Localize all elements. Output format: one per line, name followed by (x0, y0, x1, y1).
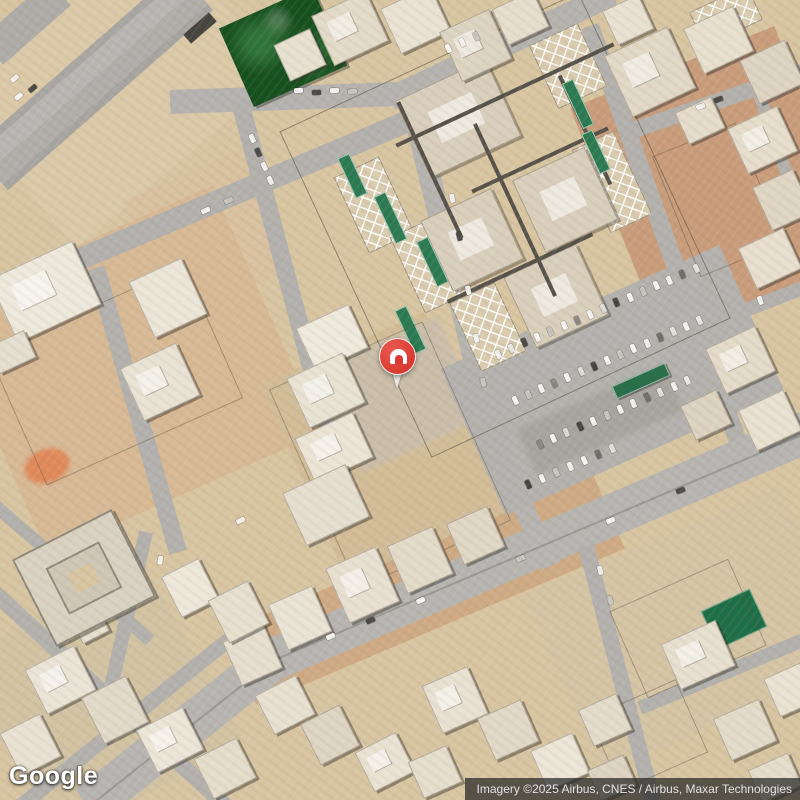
satellite-map[interactable]: Google Imagery ©2025 Airbus, CNES / Airb… (0, 0, 800, 800)
google-logo[interactable]: Google (9, 762, 98, 791)
car (347, 89, 356, 94)
rooftop-structure (310, 433, 342, 462)
car (293, 88, 302, 93)
car (329, 88, 338, 93)
home-icon (390, 349, 407, 364)
building (408, 745, 463, 799)
car (311, 90, 320, 95)
rooftop-structure (718, 345, 747, 372)
building (355, 732, 416, 792)
rooftop-structure (302, 373, 334, 403)
property-location-pin[interactable] (379, 338, 417, 394)
building (161, 558, 219, 618)
rooftop-structure (622, 52, 660, 88)
rooftop-structure (149, 726, 177, 752)
rooftop-structure (675, 640, 706, 668)
rooftop-structure (366, 749, 391, 773)
building (380, 0, 451, 54)
car (235, 516, 245, 524)
rooftop-structure (326, 12, 358, 42)
imagery-attribution: Imagery ©2025 Airbus, CNES / Airbus, Max… (465, 778, 800, 800)
car (157, 555, 163, 565)
rooftop-structure (740, 125, 769, 152)
rooftop-structure (434, 685, 461, 712)
rooftop-structure (135, 365, 168, 396)
rooftop-shed (539, 176, 587, 221)
satellite-imagery-layer (0, 0, 800, 800)
rooftop-structure (339, 567, 369, 597)
rooftop-structure (10, 270, 56, 310)
pin-circle (379, 338, 416, 375)
rooftop-structure (38, 665, 67, 692)
